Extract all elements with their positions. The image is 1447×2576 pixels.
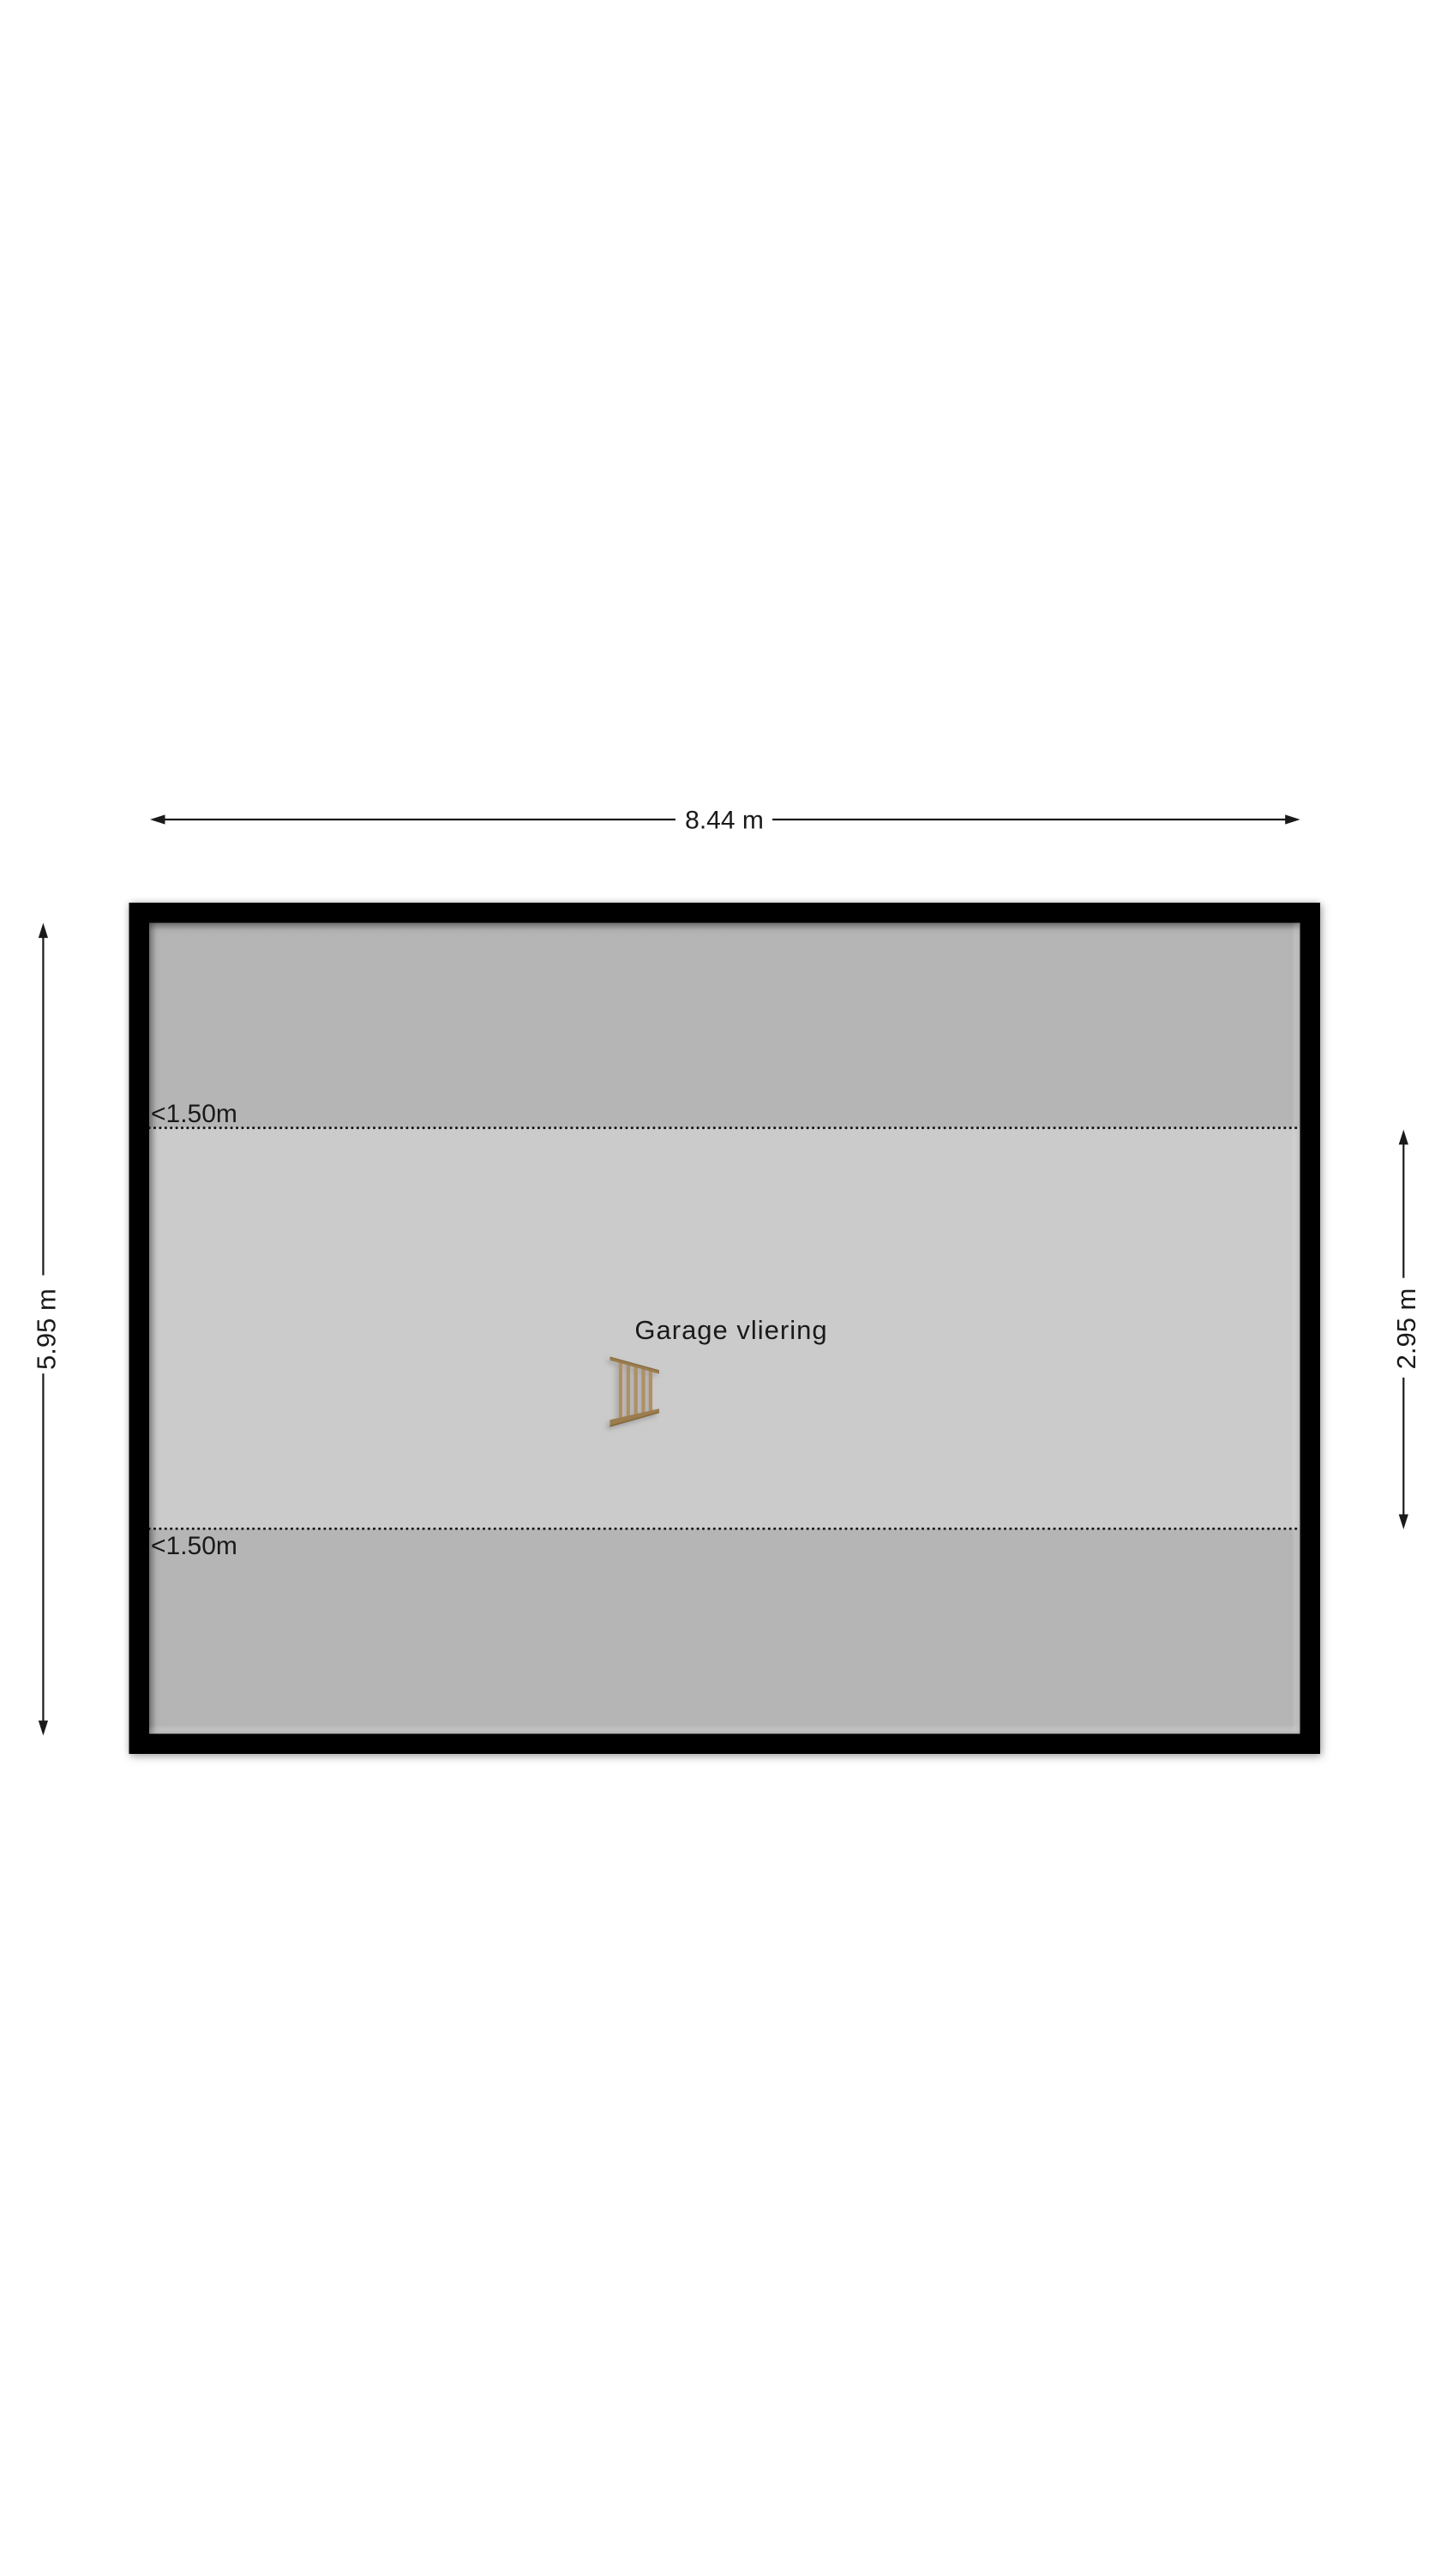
svg-text:8.44 m: 8.44 m bbox=[685, 806, 764, 834]
svg-text:5.95 m: 5.95 m bbox=[31, 1288, 61, 1370]
svg-text:<1.50m: <1.50m bbox=[151, 1100, 237, 1128]
svg-text:<1.50m: <1.50m bbox=[151, 1532, 237, 1560]
svg-text:Garage vliering: Garage vliering bbox=[634, 1315, 827, 1345]
svg-text:2.95 m: 2.95 m bbox=[1391, 1288, 1421, 1370]
